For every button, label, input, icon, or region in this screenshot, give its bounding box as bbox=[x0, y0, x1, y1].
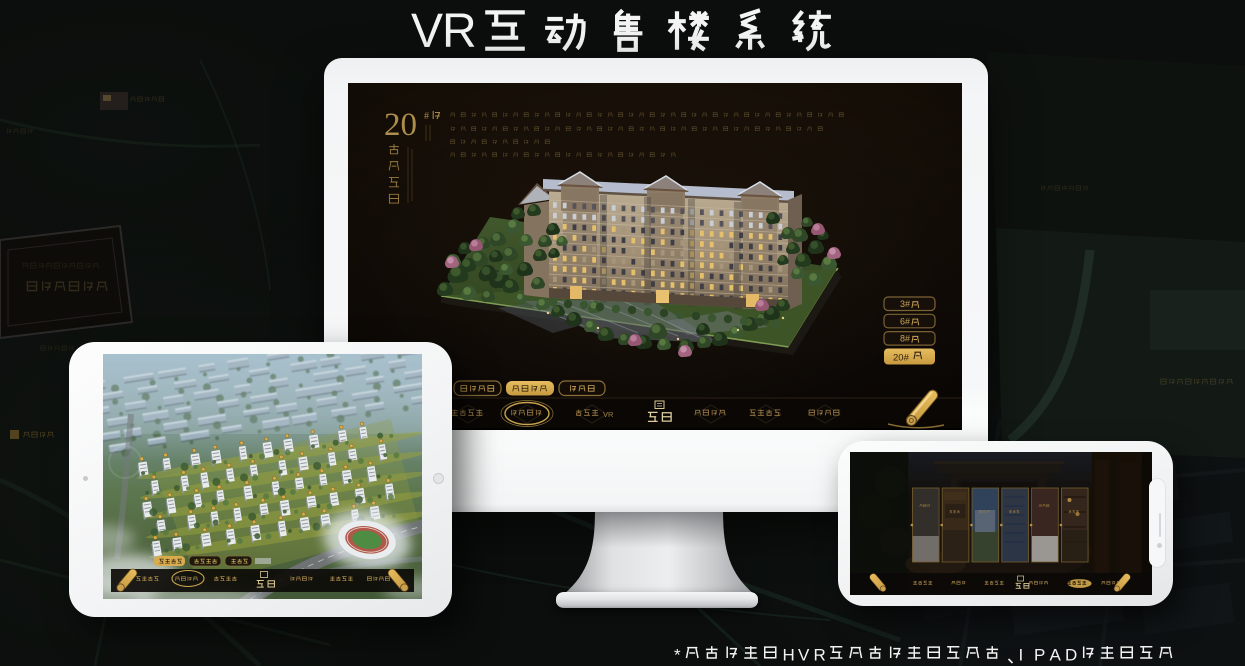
svg-text:3#: 3# bbox=[900, 299, 910, 309]
svg-text:6#: 6# bbox=[900, 316, 910, 326]
svg-text:I: I bbox=[1019, 646, 1024, 665]
svg-text:P: P bbox=[1034, 646, 1045, 665]
svg-text:R: R bbox=[814, 646, 826, 665]
svg-text:20#: 20# bbox=[893, 353, 910, 364]
svg-text:8#: 8# bbox=[900, 334, 910, 344]
svg-text:VR: VR bbox=[411, 5, 476, 58]
svg-text:VR: VR bbox=[603, 410, 614, 419]
svg-text:V: V bbox=[798, 646, 810, 665]
svg-text:*: * bbox=[674, 646, 681, 665]
svg-text:20: 20 bbox=[384, 107, 417, 143]
svg-text:#: # bbox=[424, 111, 429, 122]
svg-text:A: A bbox=[1050, 646, 1062, 665]
svg-text:H: H bbox=[783, 646, 795, 665]
svg-text:D: D bbox=[1065, 646, 1077, 665]
